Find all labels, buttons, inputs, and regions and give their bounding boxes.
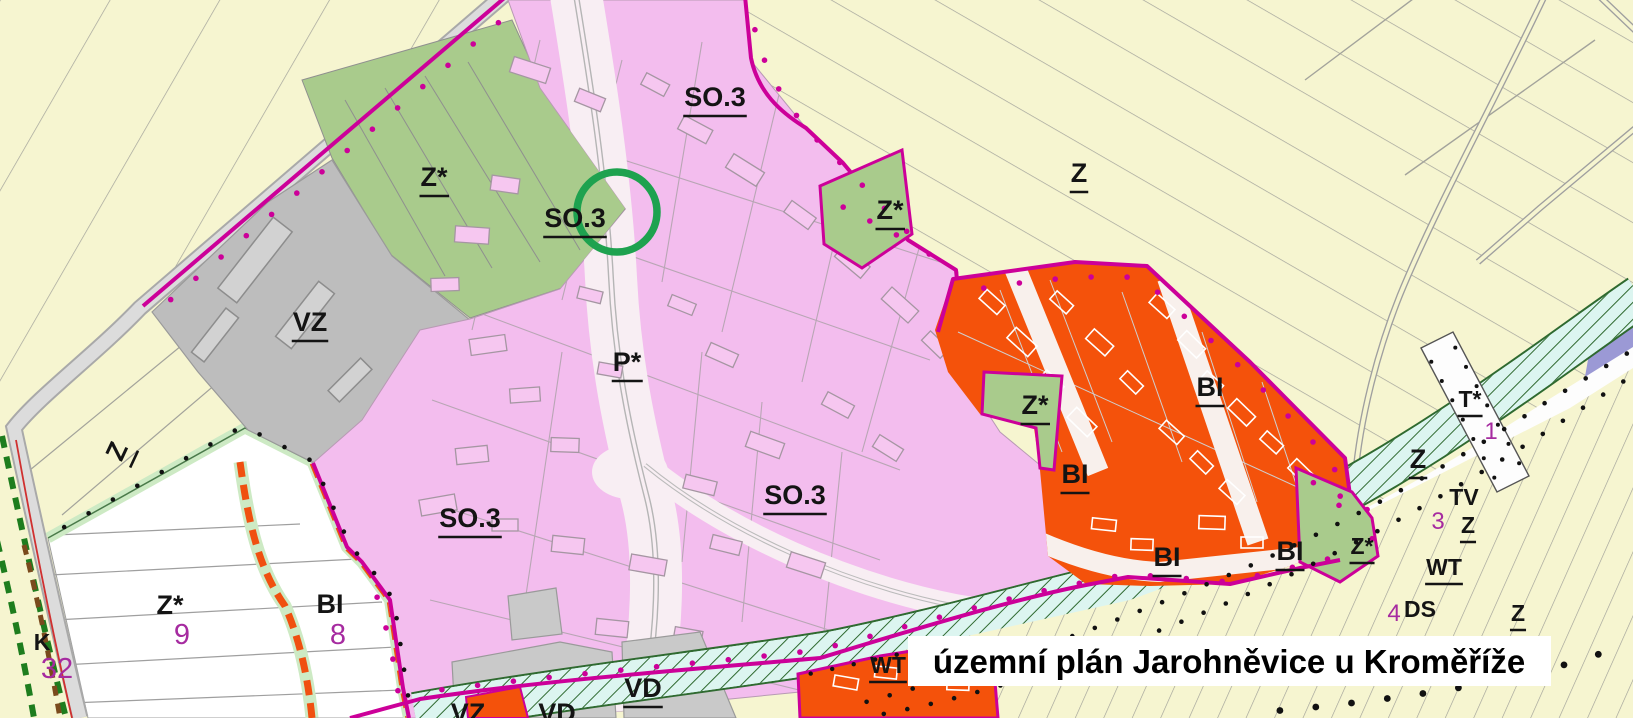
zone-label-vd: VD xyxy=(624,673,662,703)
zone-label-bi-ne: BI xyxy=(1197,372,1224,402)
zone-label-wt-east: WT xyxy=(1426,554,1462,580)
zoning-map-canvas: SO.3 Z* SO.3 Z* Z VZ P* Z Z* BI BI SO.3 … xyxy=(0,0,1633,718)
zone-label-vz: VZ xyxy=(293,307,328,337)
zone-label-tv: TV xyxy=(1449,484,1479,510)
zone-number-4: 4 xyxy=(1387,600,1400,627)
zone-label-bi-s2: BI xyxy=(1277,536,1304,566)
zone-label-so3-se: SO.3 xyxy=(764,480,826,510)
zone-label-so3-circled: SO.3 xyxy=(544,203,606,233)
zone-label-z-tv: Z xyxy=(1461,512,1475,538)
zone-label-so3-sw: SO.3 xyxy=(439,503,501,533)
zone-label-ds: DS xyxy=(1404,596,1436,622)
zone-label-tstar: T* xyxy=(1459,386,1482,412)
map-title: územní plán Jarohněvice u Kroměříže xyxy=(908,636,1551,686)
zone-label-vd-cut: VD xyxy=(538,698,576,718)
zone-number-3: 3 xyxy=(1431,508,1444,535)
zone-label-zstar-mid: Z* xyxy=(877,195,904,225)
zone-label-wt-south: WT xyxy=(870,652,906,678)
zone-label-bi-mid: BI xyxy=(1062,459,1089,489)
zone-label-zstar-white: Z* xyxy=(157,590,184,620)
zone-label-zstar-nw: Z* xyxy=(421,162,448,192)
zone-label-k: K xyxy=(34,629,51,655)
page-title: územní plán Jarohněvice u Kroměříže xyxy=(933,643,1525,680)
zone-number-8: 8 xyxy=(330,619,346,651)
zone-label-bi-white: BI xyxy=(317,589,344,619)
zone-label-z-ne: Z xyxy=(1071,158,1088,188)
zone-label-zstar-wedge: Z* xyxy=(1022,390,1049,420)
zone-number-32: 32 xyxy=(41,653,73,685)
zone-number-9: 9 xyxy=(174,619,190,651)
zone-label-bi-s1: BI xyxy=(1154,542,1181,572)
zone-label-so3-north: SO.3 xyxy=(684,82,746,112)
zone-label-vz-cut: VZ xyxy=(451,698,486,718)
zone-number-1: 1 xyxy=(1484,418,1497,445)
zone-label-z-se: Z xyxy=(1511,600,1525,626)
zone-label-zstar-east: Z* xyxy=(1351,533,1374,559)
zone-label-z-east: Z xyxy=(1410,444,1427,474)
zoning-map-screenshot: SO.3 Z* SO.3 Z* Z VZ P* Z Z* BI BI SO.3 … xyxy=(0,0,1633,718)
zone-label-pstar: P* xyxy=(613,347,642,377)
